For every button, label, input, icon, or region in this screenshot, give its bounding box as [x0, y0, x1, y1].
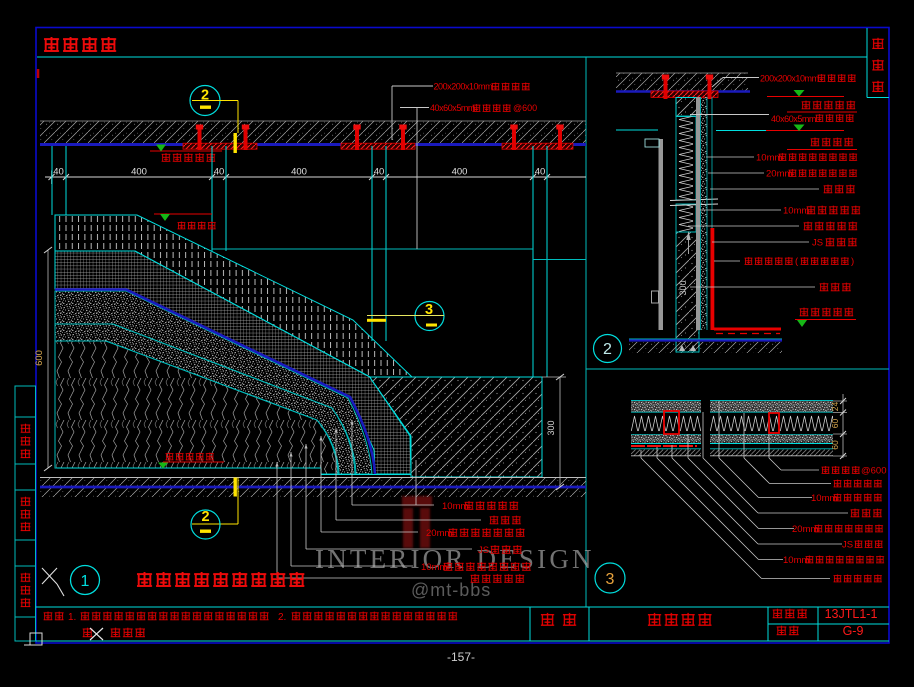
- svg-text:300: 300: [546, 420, 556, 435]
- svg-text:JS: JS: [478, 545, 489, 556]
- svg-text:60: 60: [830, 440, 840, 450]
- svg-text:600: 600: [34, 350, 45, 366]
- svg-text:200x200x10mm: 200x200x10mm: [760, 74, 819, 84]
- svg-text:40: 40: [374, 167, 385, 178]
- svg-text:10mm: 10mm: [783, 206, 809, 217]
- svg-text:1: 1: [81, 573, 90, 590]
- svg-text:3: 3: [606, 571, 615, 588]
- svg-text:JS: JS: [842, 540, 853, 551]
- svg-text:G-9: G-9: [843, 624, 864, 638]
- svg-text:JS: JS: [812, 238, 823, 249]
- svg-text:2: 2: [201, 509, 209, 525]
- svg-text:2.: 2.: [278, 612, 286, 623]
- svg-text:40: 40: [535, 167, 546, 178]
- svg-text:40x60x5mm: 40x60x5mm: [430, 103, 475, 113]
- svg-text:24: 24: [830, 402, 840, 412]
- svg-text:): ): [851, 256, 854, 267]
- svg-text:200x200x10mm: 200x200x10mm: [434, 82, 493, 92]
- svg-text:1.: 1.: [68, 612, 76, 623]
- svg-text:2: 2: [201, 88, 209, 104]
- svg-text:300: 300: [678, 280, 688, 295]
- svg-text:400: 400: [452, 167, 468, 178]
- svg-text:40: 40: [214, 167, 225, 178]
- svg-text:-157-: -157-: [447, 650, 475, 664]
- svg-text:400: 400: [131, 167, 147, 178]
- svg-text:3: 3: [425, 302, 433, 318]
- svg-text:40: 40: [53, 167, 64, 178]
- svg-text:400: 400: [291, 167, 307, 178]
- svg-text:60: 60: [830, 419, 840, 429]
- svg-text:40x60x5mm: 40x60x5mm: [771, 114, 816, 124]
- svg-text:@600: @600: [513, 103, 537, 113]
- svg-text:2: 2: [603, 341, 612, 358]
- svg-text:@600: @600: [861, 466, 887, 477]
- svg-text:13JTL1-1: 13JTL1-1: [825, 607, 878, 621]
